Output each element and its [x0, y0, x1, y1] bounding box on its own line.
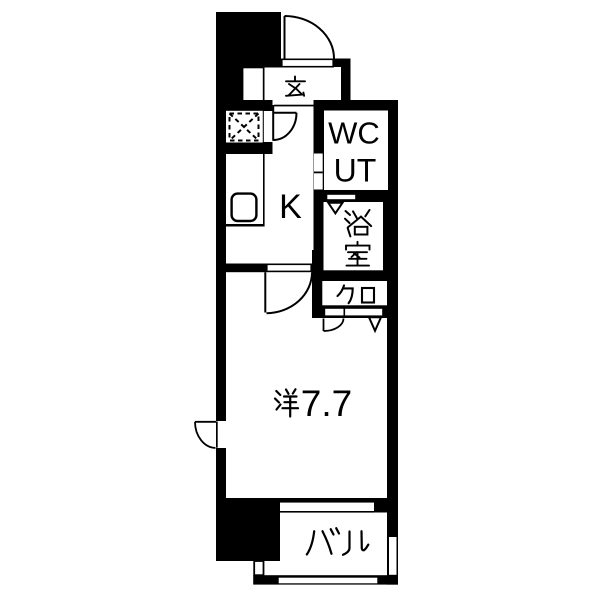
svg-text:UT: UT: [334, 152, 377, 188]
svg-text:7.7: 7.7: [301, 383, 352, 424]
svg-text:K: K: [279, 188, 302, 226]
svg-text:WC: WC: [328, 115, 380, 150]
